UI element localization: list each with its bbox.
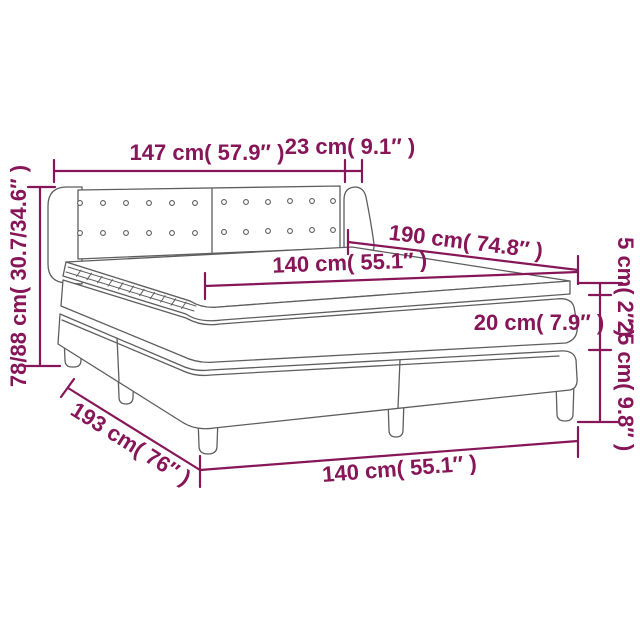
- dim-label-headboard-depth: 23 cm( 9.1″ ): [285, 134, 415, 159]
- headboard-panel: [78, 186, 340, 259]
- dim-label-base-width: 140 cm( 55.1″ ): [321, 450, 477, 487]
- dim-label-headboard-height: 78/88 cm( 30.7/34.6″ ): [6, 165, 31, 387]
- dim-label-base-height: 25 cm( 9.8″ ): [613, 321, 638, 451]
- dim-label-mattress-height: 20 cm( 7.9″ ): [474, 310, 604, 335]
- dimension-diagram: 147 cm( 57.9″ ) 23 cm( 9.1″ ) 78/88 cm( …: [0, 0, 640, 640]
- dim-label-headboard-width: 147 cm( 57.9″ ): [130, 140, 285, 165]
